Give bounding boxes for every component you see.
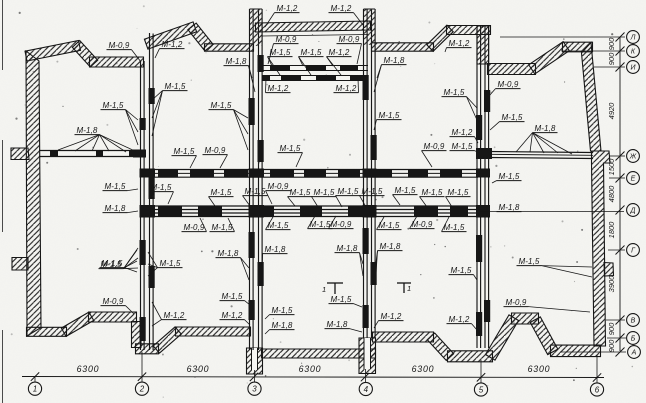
svg-text:М-0,9: М-0,9 xyxy=(276,35,297,44)
svg-text:М-1,8: М-1,8 xyxy=(272,321,293,330)
svg-text:А: А xyxy=(631,350,637,357)
svg-text:М-0,9: М-0,9 xyxy=(424,142,445,151)
svg-text:М-1,5: М-1,5 xyxy=(314,188,335,197)
svg-text:6: 6 xyxy=(595,385,600,394)
svg-text:М-1,5: М-1,5 xyxy=(444,88,465,97)
svg-text:6300: 6300 xyxy=(528,364,551,374)
svg-text:М-1,5: М-1,5 xyxy=(280,144,301,153)
svg-text:900: 900 xyxy=(607,322,616,335)
svg-text:М-1,8: М-1,8 xyxy=(77,126,98,135)
svg-text:1: 1 xyxy=(33,385,37,394)
svg-text:М-1,2: М-1,2 xyxy=(449,315,470,324)
svg-text:М-1,8: М-1,8 xyxy=(218,249,239,258)
svg-text:3: 3 xyxy=(252,385,257,394)
svg-text:900: 900 xyxy=(607,37,616,50)
svg-text:900: 900 xyxy=(607,52,616,65)
svg-text:М-1,2: М-1,2 xyxy=(164,311,185,320)
svg-text:4800: 4800 xyxy=(607,185,616,203)
svg-text:М-1,5: М-1,5 xyxy=(222,292,243,301)
svg-text:4: 4 xyxy=(364,385,369,394)
svg-text:М-1,8: М-1,8 xyxy=(337,244,358,253)
svg-text:6300: 6300 xyxy=(77,364,100,374)
svg-text:В: В xyxy=(631,318,636,325)
svg-text:М-0,9: М-0,9 xyxy=(506,298,527,307)
svg-text:М-1,5: М-1,5 xyxy=(338,187,359,196)
svg-text:М-1,5: М-1,5 xyxy=(102,259,123,268)
svg-text:М-1,5: М-1,5 xyxy=(519,257,540,266)
svg-text:М-1,8: М-1,8 xyxy=(226,57,247,66)
svg-text:6300: 6300 xyxy=(299,364,322,374)
svg-text:М-0,9: М-0,9 xyxy=(268,182,289,191)
svg-text:М-1,5: М-1,5 xyxy=(451,266,472,275)
svg-text:М-1,5: М-1,5 xyxy=(211,101,232,110)
svg-text:М-1,5: М-1,5 xyxy=(379,221,400,230)
svg-text:М-0,9: М-0,9 xyxy=(205,146,226,155)
svg-text:М-1,5: М-1,5 xyxy=(174,147,195,156)
svg-text:М-1,5: М-1,5 xyxy=(245,187,266,196)
svg-text:1: 1 xyxy=(407,284,411,293)
svg-text:М-1,2: М-1,2 xyxy=(381,312,402,321)
svg-text:М-1,8: М-1,8 xyxy=(105,204,126,213)
svg-text:3900: 3900 xyxy=(607,275,616,293)
svg-text:Д: Д xyxy=(630,208,636,215)
svg-text:М-1,8: М-1,8 xyxy=(535,124,556,133)
svg-text:М-1,8: М-1,8 xyxy=(265,245,286,254)
svg-text:5: 5 xyxy=(479,385,484,394)
svg-text:М-1,5: М-1,5 xyxy=(422,188,443,197)
svg-text:М-1,5: М-1,5 xyxy=(310,220,331,229)
svg-text:М-1,2: М-1,2 xyxy=(222,311,243,320)
svg-text:М-1,2: М-1,2 xyxy=(452,128,473,137)
svg-text:1500: 1500 xyxy=(607,158,616,176)
svg-text:М-1,8: М-1,8 xyxy=(499,203,520,212)
svg-text:М-0,9: М-0,9 xyxy=(331,220,352,229)
svg-text:1: 1 xyxy=(322,285,326,294)
svg-text:М-1,5: М-1,5 xyxy=(448,188,469,197)
svg-text:М-1,5: М-1,5 xyxy=(290,188,311,197)
svg-text:М-1,5: М-1,5 xyxy=(379,111,400,120)
svg-text:М-1,5: М-1,5 xyxy=(160,259,181,268)
svg-text:М-1,5: М-1,5 xyxy=(105,182,126,191)
svg-text:М-1,2: М-1,2 xyxy=(329,48,350,57)
svg-text:М-1,5: М-1,5 xyxy=(165,82,186,91)
svg-text:М-1,5: М-1,5 xyxy=(301,48,322,57)
svg-text:4920: 4920 xyxy=(607,102,616,120)
svg-text:М-1,8: М-1,8 xyxy=(327,320,348,329)
svg-text:М-1,5: М-1,5 xyxy=(103,101,124,110)
svg-text:М-0,9: М-0,9 xyxy=(109,41,130,50)
svg-text:М-1,5: М-1,5 xyxy=(212,223,233,232)
svg-text:М-1,2: М-1,2 xyxy=(277,4,298,13)
svg-text:Л: Л xyxy=(630,35,636,42)
svg-text:Ж: Ж xyxy=(629,154,637,161)
svg-text:6300: 6300 xyxy=(187,364,210,374)
svg-text:М-1,5: М-1,5 xyxy=(499,172,520,181)
svg-text:М-1,8: М-1,8 xyxy=(380,242,401,251)
svg-text:М-1,5: М-1,5 xyxy=(272,306,293,315)
svg-text:М-1,2: М-1,2 xyxy=(162,40,183,49)
svg-text:М-1,2: М-1,2 xyxy=(449,39,470,48)
svg-text:М-1,2: М-1,2 xyxy=(268,84,289,93)
svg-text:Б: Б xyxy=(631,336,636,343)
svg-text:2: 2 xyxy=(139,385,145,394)
svg-text:М-0,9: М-0,9 xyxy=(412,220,433,229)
svg-text:М-0,9: М-0,9 xyxy=(498,80,519,89)
svg-text:М-1,5: М-1,5 xyxy=(211,188,232,197)
svg-text:М-1,5: М-1,5 xyxy=(395,186,416,195)
svg-text:Е: Е xyxy=(631,176,636,183)
svg-text:М-1,5: М-1,5 xyxy=(502,113,523,122)
svg-text:6300: 6300 xyxy=(412,364,435,374)
svg-text:1800: 1800 xyxy=(607,221,616,239)
svg-text:М-1,5: М-1,5 xyxy=(362,187,383,196)
svg-text:М-1,5: М-1,5 xyxy=(151,183,172,192)
svg-text:900: 900 xyxy=(607,339,616,352)
svg-text:М-1,2: М-1,2 xyxy=(331,4,352,13)
svg-text:М-1,5: М-1,5 xyxy=(331,295,352,304)
svg-text:М-1,5: М-1,5 xyxy=(268,221,289,230)
svg-text:М-1,5: М-1,5 xyxy=(452,142,473,151)
svg-text:М-1,5: М-1,5 xyxy=(444,223,465,232)
svg-text:М-1,8: М-1,8 xyxy=(384,56,405,65)
svg-text:М-0,9: М-0,9 xyxy=(103,297,124,306)
svg-text:М-1,2: М-1,2 xyxy=(336,84,357,93)
svg-text:М-0,9: М-0,9 xyxy=(339,35,360,44)
svg-text:М-0,9: М-0,9 xyxy=(184,223,205,232)
svg-text:М-1,5: М-1,5 xyxy=(270,48,291,57)
